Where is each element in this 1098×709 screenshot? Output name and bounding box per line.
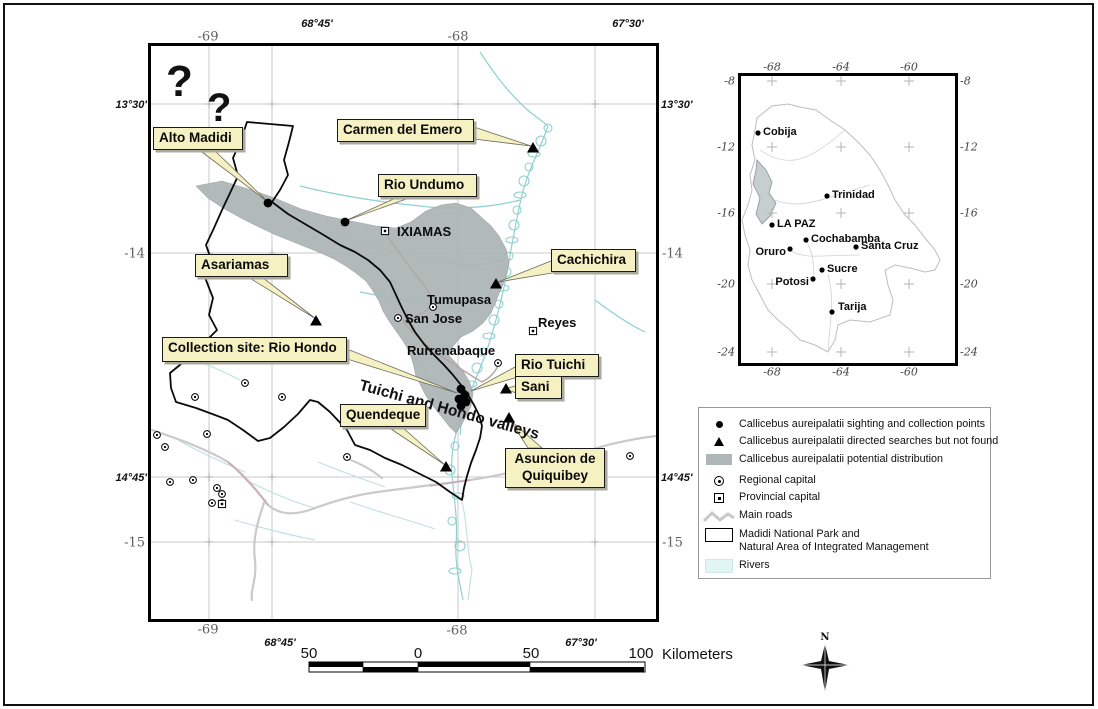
- axis-tick-inset: -64: [832, 61, 850, 74]
- regional-capital-dot: [164, 446, 166, 448]
- axis-tick-main: -14: [662, 247, 683, 262]
- callout-asariamas: Asariamas: [195, 254, 288, 277]
- axis-tick-inset: -16: [960, 207, 978, 220]
- grid-cross: [454, 473, 462, 481]
- callout-text: Quendeque: [346, 407, 420, 422]
- legend-label: Provincial capital: [739, 491, 820, 504]
- inset-city-dot-sucre: [819, 267, 824, 272]
- legend-label: Madidi National Park andNatural Area of …: [739, 528, 929, 554]
- inset-grid-cross: [904, 279, 914, 289]
- axis-tick-inset: -8: [960, 75, 971, 88]
- callout-text: Rio Undumo: [384, 177, 464, 192]
- sighting-point-marker: [341, 218, 350, 227]
- town-label-tumupasa: Tumupasa: [427, 292, 491, 307]
- legend-road-icon: [703, 509, 735, 525]
- callout-text: Asuncion de: [514, 451, 595, 466]
- inset-city-label-tarija: Tarija: [838, 301, 867, 313]
- inset-grid-cross: [904, 347, 914, 357]
- inset-grid-cross: [767, 347, 777, 357]
- legend-label: Rivers: [739, 559, 770, 572]
- scale-label-0: 0: [414, 645, 422, 662]
- river-meander-loop: [514, 192, 526, 198]
- legend-symbol: [703, 559, 735, 573]
- grid-cross: [591, 538, 599, 546]
- inset-grid-cross: [904, 142, 914, 152]
- inset-grid-cross: [836, 347, 846, 357]
- inset-city-label-potosi: Potosi: [739, 276, 809, 288]
- callout-text: Cachichira: [557, 252, 626, 267]
- inset-grid-cross: [836, 142, 846, 152]
- axis-tick-main: 68°45': [264, 637, 296, 649]
- legend-search-triangle-icon: [714, 437, 724, 446]
- axis-tick-main: -69: [198, 30, 219, 45]
- legend-sighting-dot-icon: [716, 421, 723, 428]
- river-meander-loop: [489, 315, 499, 325]
- regional-capital-dot: [194, 396, 196, 398]
- inset-city-dot-cochabamba: [803, 237, 808, 242]
- river-line-faint-4: [235, 520, 315, 540]
- legend-label: Callicebus aureipalatii directed searche…: [739, 435, 998, 448]
- inset-grid-cross: [836, 208, 846, 218]
- inset-grid-cross: [767, 142, 777, 152]
- callout-text: Alto Madidi: [159, 130, 232, 145]
- scale-label-100: 100: [628, 645, 653, 662]
- bolivia-outline: [742, 104, 940, 352]
- callout-text: Carmen del Emero: [343, 122, 462, 137]
- river-meander-loop: [449, 568, 461, 574]
- legend-label: Callicebus aureipalatii potential distri…: [739, 453, 943, 466]
- legend-distribution-swatch: [706, 454, 732, 465]
- town-label-san-jose: San Jose: [405, 311, 462, 326]
- callout-sani: Sani: [515, 376, 562, 399]
- callout-beam-asariamas: [248, 277, 316, 319]
- callout-text: Asariamas: [201, 257, 269, 272]
- map-figure: Callicebus aureipalatii sighting and col…: [0, 0, 1098, 709]
- regional-capital-dot: [397, 317, 399, 319]
- legend-symbol: [703, 435, 735, 449]
- legend-label: Callicebus aureipalatii sighting and col…: [739, 418, 985, 431]
- regional-capital-dot: [244, 382, 246, 384]
- river-line-0: [480, 52, 548, 126]
- town-label-reyes: Reyes: [538, 315, 576, 330]
- provincial-capital-dot: [221, 503, 223, 505]
- legend-label: Main roads: [739, 509, 792, 522]
- legend-regional-capital-icon: [714, 476, 724, 486]
- main-road-1: [252, 500, 265, 600]
- provincial-capital-dot: [384, 230, 386, 232]
- axis-tick-main: -14: [124, 247, 145, 262]
- inset-city-label-sucre: Sucre: [827, 263, 858, 275]
- inset-grid-cross: [904, 76, 914, 86]
- inset-city-label-trinidad: Trinidad: [832, 189, 875, 201]
- inset-city-dot-trinidad: [824, 193, 829, 198]
- inset-city-label-santa-cruz: Santa Cruz: [861, 240, 918, 252]
- axis-tick-inset: -12: [960, 141, 978, 154]
- inset-city-dot-oruro: [787, 246, 792, 251]
- callout-asuncion-de-quiquibey: Asuncion deQuiquibey: [505, 448, 605, 488]
- grid-cross: [591, 100, 599, 108]
- axis-tick-main: -69: [198, 623, 219, 638]
- legend-park-outline-icon: [705, 528, 733, 542]
- axis-tick-main: -15: [662, 536, 683, 551]
- callout-text: Sani: [521, 379, 550, 394]
- department-border-4: [806, 240, 814, 279]
- regional-capital-dot: [156, 434, 158, 436]
- department-border-2: [790, 250, 860, 256]
- question-mark-2: ?: [207, 88, 231, 128]
- legend-symbol: [703, 453, 735, 467]
- river-meander-loop: [483, 333, 495, 339]
- callout-collection-site-rio-hondo: Collection site: Rio Hondo: [162, 337, 347, 362]
- axis-tick-inset: -60: [900, 366, 918, 379]
- inset-city-label-la-paz: LA PAZ: [777, 218, 816, 230]
- river-line-faint-6: [462, 502, 472, 600]
- legend-river-swatch: [705, 559, 733, 573]
- river-line-4: [595, 300, 645, 332]
- river-meander-loop: [519, 176, 529, 186]
- grid-cross: [205, 473, 213, 481]
- legend-label: Regional capital: [739, 474, 816, 487]
- grid-cross: [454, 100, 462, 108]
- axis-tick-main: 14°45': [661, 472, 693, 484]
- callout-rio-tuichi: Rio Tuichi: [515, 354, 599, 377]
- regional-capital-dot: [211, 502, 213, 504]
- river-line-faint-5: [350, 502, 435, 529]
- regional-capital-dot: [281, 396, 283, 398]
- river-meander-loop: [509, 220, 519, 230]
- grid-cross: [205, 538, 213, 546]
- callout-alto-madidi: Alto Madidi: [153, 127, 243, 150]
- callout-rio-undumo: Rio Undumo: [378, 174, 477, 197]
- regional-capital-dot: [629, 455, 631, 457]
- inset-grid-cross: [836, 279, 846, 289]
- callout-cachichira: Cachichira: [551, 249, 636, 272]
- regional-capital-dot: [346, 456, 348, 458]
- axis-tick-inset: -12: [717, 141, 735, 154]
- river-meander-loop: [448, 517, 456, 525]
- regional-capital-dot: [169, 481, 171, 483]
- callout-beam-carmen-del-emero: [474, 127, 531, 146]
- sighting-point-marker: [264, 199, 273, 208]
- grid-cross: [268, 538, 276, 546]
- axis-tick-inset: -8: [724, 75, 735, 88]
- inset-grid-cross: [836, 76, 846, 86]
- scale-label-50-right: 50: [523, 645, 540, 662]
- axis-tick-inset: -24: [717, 346, 735, 359]
- regional-capital-dot: [192, 479, 194, 481]
- provincial-capital-dot: [532, 330, 534, 332]
- inset-city-dot-cobija: [755, 130, 760, 135]
- axis-tick-main: 14°45': [116, 472, 148, 484]
- legend-provincial-capital-icon: [714, 493, 724, 503]
- callout-quendeque: Quendeque: [340, 404, 426, 427]
- axis-tick-main: 13°30': [116, 99, 148, 111]
- axis-tick-inset: -20: [717, 278, 735, 291]
- town-label-rurrenabaque: Rurrenabaque: [407, 343, 495, 358]
- scale-bar-graphic: [308, 661, 648, 674]
- scale-label-50-left: 50: [301, 645, 318, 662]
- callout-text: Rio Tuichi: [521, 357, 585, 372]
- axis-tick-inset: -64: [832, 366, 850, 379]
- legend-symbol: [703, 509, 735, 523]
- axis-tick-main: -68: [448, 30, 469, 45]
- regional-capital-dot: [206, 433, 208, 435]
- inset-city-label-cobija: Cobija: [763, 126, 797, 138]
- regional-capital-dot: [497, 362, 499, 364]
- inset-city-dot-la-paz: [769, 222, 774, 227]
- callout-text: Quiquibey: [522, 468, 588, 483]
- callout-carmen-del-emero: Carmen del Emero: [337, 119, 474, 142]
- north-arrow-icon: [798, 642, 852, 698]
- river-line-faint-3: [318, 462, 385, 487]
- legend-symbol: [703, 491, 735, 505]
- grid-cross: [268, 473, 276, 481]
- town-label-ixiamas: IXIAMAS: [397, 224, 451, 239]
- axis-tick-main: 13°30': [661, 99, 693, 111]
- inset-grid-cross: [904, 208, 914, 218]
- axis-tick-main: 68°45': [301, 18, 333, 30]
- legend-box: Callicebus aureipalatii sighting and col…: [698, 407, 991, 579]
- axis-tick-inset: -68: [763, 61, 781, 74]
- inset-grid-cross: [767, 76, 777, 86]
- inset-city-label-oruro: Oruro: [716, 246, 786, 258]
- legend-symbol: [703, 418, 735, 432]
- axis-tick-inset: -24: [960, 346, 978, 359]
- axis-tick-inset: -20: [960, 278, 978, 291]
- callout-text: Collection site: Rio Hondo: [168, 340, 337, 355]
- inset-madidi-region: [753, 160, 776, 224]
- legend-symbol: [703, 474, 735, 488]
- axis-tick-main: -68: [447, 624, 468, 639]
- axis-tick-inset: -68: [763, 366, 781, 379]
- callout-beam-quendeque: [388, 427, 445, 465]
- axis-tick-inset: -16: [717, 207, 735, 220]
- regional-capital-dot: [216, 487, 218, 489]
- grid-cross: [268, 100, 276, 108]
- inset-city-dot-potosi: [810, 276, 815, 281]
- axis-tick-main: 67°30': [612, 18, 644, 30]
- legend-symbol: [703, 528, 735, 542]
- axis-tick-inset: -60: [900, 61, 918, 74]
- scale-unit-label: Kilometers: [662, 646, 733, 663]
- question-mark-1: ?: [166, 60, 193, 104]
- inset-city-dot-santa-cruz: [853, 244, 858, 249]
- river-meander-loop: [513, 206, 521, 214]
- inset-city-dot-tarija: [829, 309, 834, 314]
- axis-tick-main: -15: [124, 536, 145, 551]
- regional-capital-dot: [221, 493, 223, 495]
- axis-tick-main: 67°30': [565, 637, 597, 649]
